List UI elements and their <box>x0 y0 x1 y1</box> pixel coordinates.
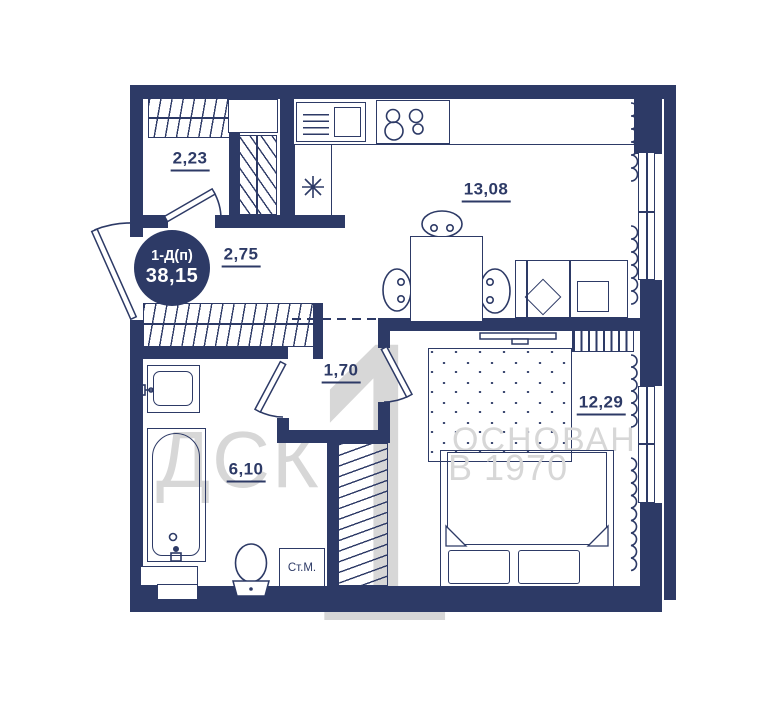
tv <box>480 333 556 344</box>
bedroom-door <box>381 347 412 402</box>
apartment-type-label: 1-Д(п) <box>151 248 193 264</box>
stove-burners <box>385 110 423 141</box>
floor-plan: ДСК 1 ОСНОВАН В 1970 <box>0 0 760 728</box>
sink-faucet-icon <box>137 385 153 395</box>
vent-asterisk-icon <box>302 176 324 198</box>
curtain-bedroom <box>631 355 637 571</box>
bathtub-drain-icon <box>170 534 182 562</box>
toilet <box>233 544 269 596</box>
drawing-layer <box>0 0 760 728</box>
label-kitchen-living: 13,08 <box>462 180 511 203</box>
label-bathroom: 6,10 <box>227 460 266 483</box>
apartment-area-label: 38,15 <box>146 265 199 288</box>
apartment-type-badge: 1-Д(п) 38,15 <box>134 230 210 306</box>
entry-room-door <box>165 189 222 222</box>
label-entry-room: 2,23 <box>171 149 210 172</box>
entrance-door <box>92 223 137 319</box>
label-bedroom: 12,29 <box>577 393 626 416</box>
label-inner-hall: 1,70 <box>322 361 361 384</box>
curtain-living <box>631 103 638 304</box>
bathroom-door <box>255 362 286 417</box>
label-hallway: 2,75 <box>222 245 261 268</box>
blanket-folds <box>446 526 608 546</box>
